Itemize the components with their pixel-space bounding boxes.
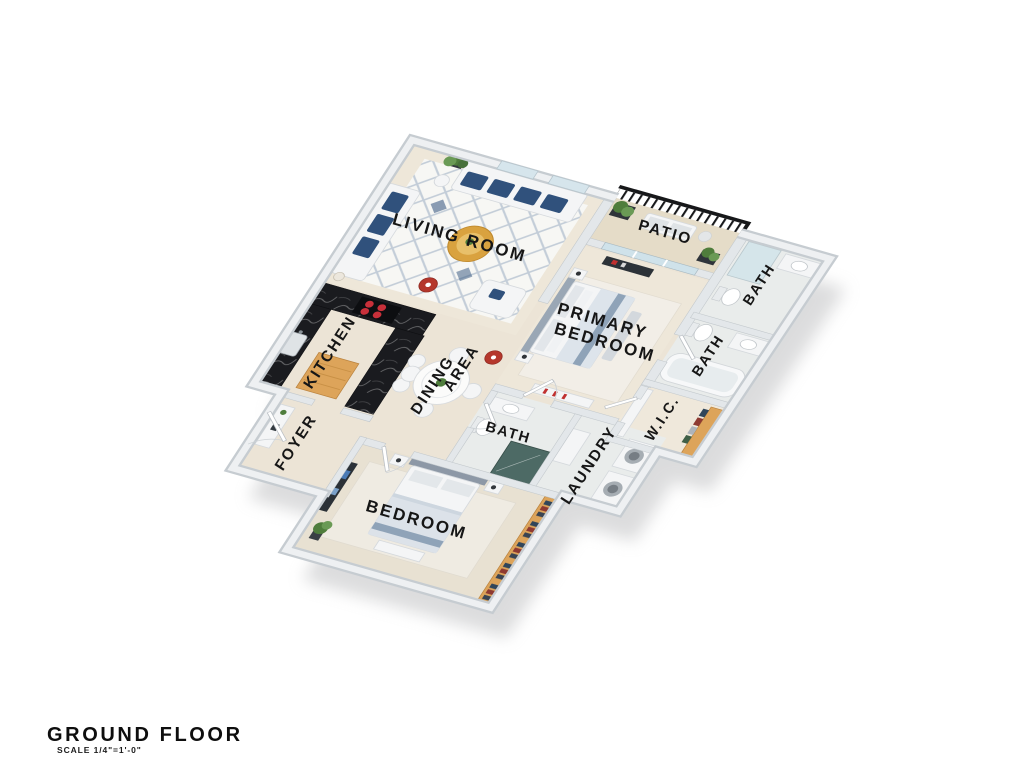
plan-scale-note: SCALE 1/4"=1'-0" [57, 745, 142, 755]
floorplan [164, 127, 838, 635]
floorplan-page: LIVING ROOM PATIO BATH BATH PRIMARY BEDR… [0, 0, 1024, 768]
plan-title: GROUND FLOOR [47, 724, 243, 746]
title-block: GROUND FLOOR SCALE 1/4"=1'-0" [47, 724, 243, 755]
floorplan-svg: LIVING ROOM PATIO BATH BATH PRIMARY BEDR… [0, 0, 1024, 768]
